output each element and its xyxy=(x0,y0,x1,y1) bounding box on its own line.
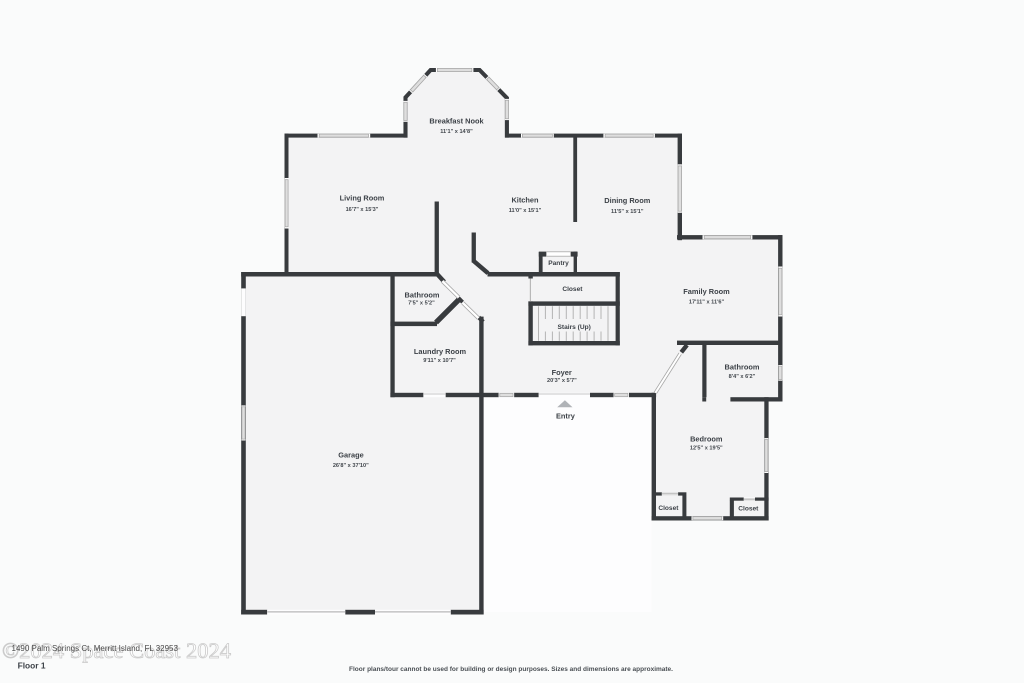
svg-text:8'4" x 6'2": 8'4" x 6'2" xyxy=(729,374,756,380)
svg-text:Foyer: Foyer xyxy=(552,368,572,377)
svg-text:Breakfast Nook: Breakfast Nook xyxy=(429,116,484,125)
svg-text:Bathroom: Bathroom xyxy=(725,363,760,372)
svg-text:Bathroom: Bathroom xyxy=(405,290,440,299)
svg-text:Closet: Closet xyxy=(658,505,679,512)
svg-text:11'0" x 15'1": 11'0" x 15'1" xyxy=(509,208,542,214)
svg-text:Floor plans/tour cannot be use: Floor plans/tour cannot be used for buil… xyxy=(349,666,673,673)
svg-text:Pantry: Pantry xyxy=(548,260,569,267)
svg-text:11'1" x 14'8": 11'1" x 14'8" xyxy=(440,129,473,135)
svg-text:16'7" x 15'3": 16'7" x 15'3" xyxy=(346,207,379,213)
svg-text:7'5" x 5'2": 7'5" x 5'2" xyxy=(408,300,435,306)
svg-text:Closet: Closet xyxy=(738,505,759,512)
svg-text:Laundry Room: Laundry Room xyxy=(414,347,467,356)
svg-text:12'5" x 19'5": 12'5" x 19'5" xyxy=(690,446,723,452)
svg-text:Dining Room: Dining Room xyxy=(604,196,650,205)
svg-text:17'11" x 11'6": 17'11" x 11'6" xyxy=(689,300,725,306)
svg-text:11'5" x 15'1": 11'5" x 15'1" xyxy=(611,209,644,215)
svg-text:Entry: Entry xyxy=(556,412,576,421)
svg-text:9'11" x 10'7": 9'11" x 10'7" xyxy=(423,358,456,364)
svg-text:20'3" x 5'7": 20'3" x 5'7" xyxy=(547,378,577,384)
svg-text:Bedroom: Bedroom xyxy=(690,434,723,443)
svg-text:Closet: Closet xyxy=(562,286,583,293)
svg-text:26'8" x 37'10": 26'8" x 37'10" xyxy=(333,463,369,469)
svg-text:1490 Palm Springs Ct, Merritt: 1490 Palm Springs Ct, Merritt Island, FL… xyxy=(12,644,179,653)
svg-text:Living Room: Living Room xyxy=(340,193,385,202)
svg-text:Kitchen: Kitchen xyxy=(511,196,539,205)
svg-text:Garage: Garage xyxy=(338,450,363,459)
svg-text:Stairs (Up): Stairs (Up) xyxy=(558,324,591,331)
svg-text:Family Room: Family Room xyxy=(683,287,730,296)
svg-text:Floor 1: Floor 1 xyxy=(18,660,46,670)
